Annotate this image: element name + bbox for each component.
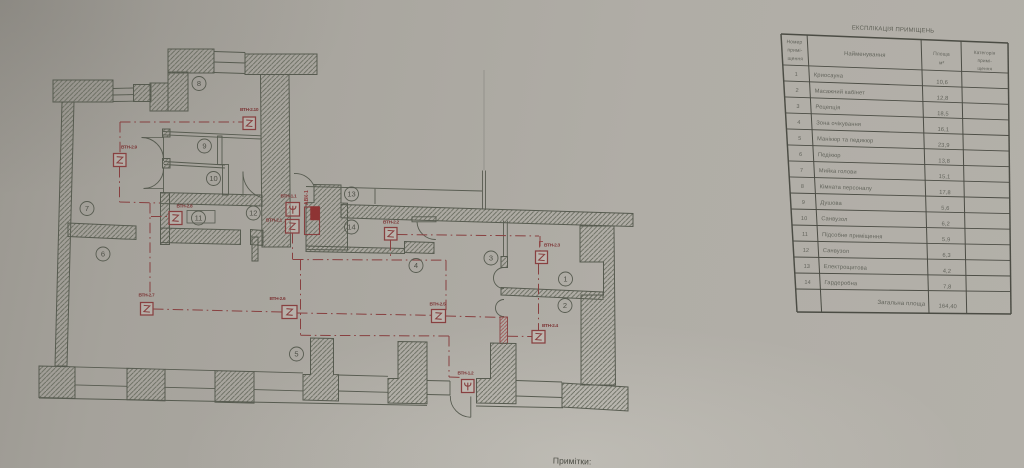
svg-text:Санвузол: Санвузол — [823, 248, 850, 255]
svg-text:9: 9 — [802, 200, 805, 206]
svg-text:11: 11 — [802, 232, 808, 238]
svg-text:м²: м² — [939, 60, 945, 66]
svg-text:16,1: 16,1 — [937, 127, 949, 133]
svg-text:Площа: Площа — [933, 51, 950, 58]
svg-text:Примітки:: Примітки: — [553, 455, 592, 466]
svg-text:2: 2 — [795, 88, 798, 94]
svg-text:4,2: 4,2 — [943, 269, 952, 275]
svg-text:Загальна площа: Загальна площа — [877, 300, 926, 308]
svg-text:щення: щення — [787, 57, 803, 63]
svg-text:ВТН-1.2: ВТН-1.2 — [458, 371, 474, 377]
svg-text:164,40: 164,40 — [938, 304, 957, 311]
svg-text:14: 14 — [347, 223, 355, 232]
svg-text:13: 13 — [347, 190, 355, 199]
svg-text:5,9: 5,9 — [942, 237, 951, 243]
svg-text:3: 3 — [796, 104, 799, 110]
svg-text:Найменування: Найменування — [844, 50, 886, 59]
svg-text:2: 2 — [563, 301, 567, 310]
svg-text:17,8: 17,8 — [939, 190, 951, 196]
svg-text:Мийка голови: Мийка голови — [819, 167, 857, 176]
svg-text:ВТН-2.4: ВТН-2.4 — [542, 323, 558, 329]
svg-text:АВК-1: АВК-1 — [304, 190, 310, 205]
svg-text:10: 10 — [209, 174, 217, 183]
svg-text:18,5: 18,5 — [937, 111, 949, 117]
svg-text:Манікюр та педикюр: Манікюр та педикюр — [817, 136, 874, 144]
svg-text:4: 4 — [414, 261, 418, 270]
svg-text:Санвузол: Санвузол — [821, 216, 848, 223]
svg-text:10,6: 10,6 — [936, 80, 948, 86]
svg-text:9: 9 — [202, 142, 206, 151]
svg-text:12: 12 — [803, 248, 810, 254]
svg-text:4: 4 — [797, 120, 800, 126]
svg-text:щення: щення — [977, 66, 992, 72]
svg-text:1: 1 — [563, 275, 567, 284]
svg-text:12,8: 12,8 — [937, 95, 949, 101]
svg-text:6,2: 6,2 — [941, 221, 950, 227]
svg-text:13: 13 — [804, 264, 811, 270]
svg-text:15,1: 15,1 — [939, 174, 951, 180]
svg-text:Кімната персоналу: Кімната персоналу — [819, 184, 872, 192]
svg-text:ВТН-2.2: ВТН-2.2 — [383, 220, 399, 226]
svg-text:6: 6 — [101, 250, 105, 259]
svg-text:8: 8 — [801, 184, 804, 190]
svg-text:ВТН-2.8: ВТН-2.8 — [177, 204, 193, 210]
svg-text:Номер: Номер — [786, 39, 802, 46]
svg-text:Електрощитова: Електрощитова — [824, 264, 868, 272]
svg-text:Педікюр: Педікюр — [818, 152, 841, 159]
svg-text:ВТН-2.7: ВТН-2.7 — [139, 293, 155, 299]
svg-text:6,3: 6,3 — [942, 253, 951, 259]
svg-text:10: 10 — [801, 216, 808, 222]
svg-text:Масажний кабінет: Масажний кабінет — [815, 88, 866, 97]
svg-text:ВТН-2.10: ВТН-2.10 — [240, 107, 259, 113]
svg-text:5,6: 5,6 — [941, 206, 950, 212]
svg-text:примі-: примі- — [977, 58, 992, 64]
svg-text:1: 1 — [795, 72, 798, 78]
svg-text:Зона очікування: Зона очікування — [816, 120, 861, 128]
svg-text:Криосауна: Криосауна — [814, 73, 844, 80]
svg-text:3: 3 — [489, 254, 493, 263]
svg-text:6: 6 — [799, 152, 802, 158]
svg-text:ВТН-2.5: ВТН-2.5 — [430, 302, 446, 308]
svg-text:8: 8 — [197, 79, 201, 88]
svg-text:7,8: 7,8 — [943, 284, 952, 290]
svg-text:7: 7 — [800, 168, 803, 174]
svg-text:ВТН-2.6: ВТН-2.6 — [270, 296, 286, 302]
svg-text:5: 5 — [798, 136, 801, 142]
svg-text:Душова: Душова — [820, 200, 842, 207]
svg-text:5: 5 — [294, 350, 298, 359]
svg-text:ВТН-1.1: ВТН-1.1 — [281, 194, 297, 200]
svg-text:Підсобне приміщення: Підсобне приміщення — [822, 232, 883, 240]
svg-text:11: 11 — [195, 214, 203, 223]
svg-text:ВТН-2.1: ВТН-2.1 — [266, 218, 282, 224]
svg-text:Категорія: Категорія — [974, 50, 996, 56]
svg-text:ВТН-2.9: ВТН-2.9 — [121, 145, 137, 151]
svg-text:Гардеробна: Гардеробна — [824, 280, 858, 287]
svg-text:ЕКСПЛІКАЦІЯ ПРИМІЩЕНЬ: ЕКСПЛІКАЦІЯ ПРИМІЩЕНЬ — [852, 25, 935, 34]
svg-text:примі-: примі- — [787, 47, 803, 54]
svg-text:14: 14 — [804, 280, 811, 286]
svg-text:13,8: 13,8 — [938, 158, 950, 164]
svg-text:Рецепція: Рецепція — [815, 104, 840, 111]
svg-text:23,9: 23,9 — [938, 143, 950, 149]
svg-text:ВТН-2.3: ВТН-2.3 — [544, 243, 560, 249]
svg-text:12: 12 — [249, 209, 257, 218]
svg-text:7: 7 — [85, 204, 89, 213]
